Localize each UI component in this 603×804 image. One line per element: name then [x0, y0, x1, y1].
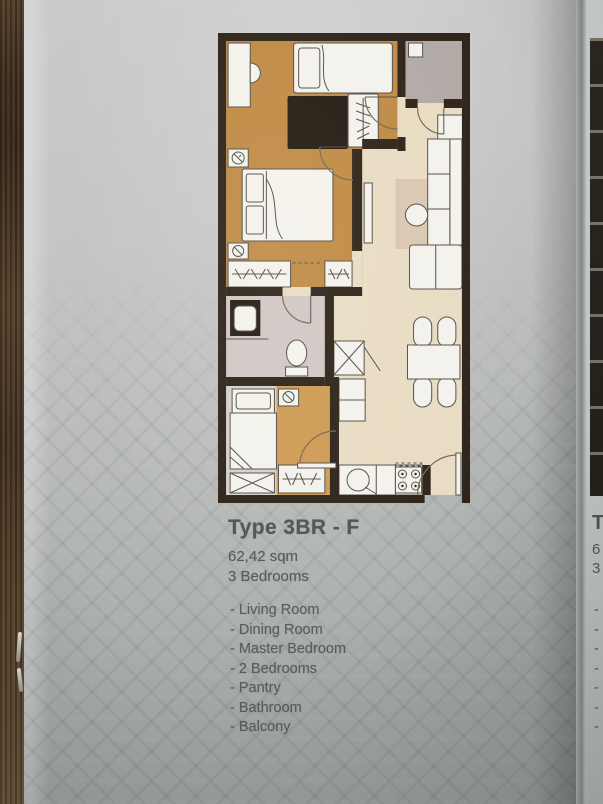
coffee-table: [405, 204, 427, 226]
fan-symbol-1: [228, 149, 248, 167]
plan-bedrooms: 3 Bedrooms: [228, 567, 360, 586]
balcony-unit: [409, 43, 423, 57]
master-wardrobe-right: [325, 261, 352, 287]
brochure-photo: Type 3BR - F 62,42 sqm 3 Bedrooms - Livi…: [0, 0, 603, 804]
plan-caption: Type 3BR - F 62,42 sqm 3 Bedrooms: [228, 516, 360, 586]
feature-item: - Pantry: [230, 679, 346, 699]
fan-symbol-3: [278, 389, 298, 406]
bedroom2-wardrobe-dark: [288, 96, 348, 149]
adjacent-floorplan-edge: [590, 38, 603, 496]
toilet-symbol: [286, 340, 308, 376]
fan-symbol-2: [228, 243, 248, 259]
feature-item: - Living Room: [230, 601, 346, 621]
adjacent-area-fragment: 6: [592, 541, 603, 559]
adjacent-title-fragment: T: [592, 512, 603, 534]
feature-item: - Bathroom: [230, 699, 346, 719]
plan-title: Type 3BR - F: [228, 516, 360, 540]
plan-area: 62,42 sqm: [228, 547, 360, 566]
feature-list: - Living Room - Dining Room - Master Bed…: [230, 601, 346, 738]
feature-item: - 2 Bedrooms: [230, 660, 346, 680]
hall-passage: [352, 251, 362, 289]
dining-table: [408, 345, 460, 379]
floorplan: [218, 33, 470, 503]
bedroom2-bed: [294, 43, 393, 93]
page-gap-shadow: [576, 0, 586, 804]
bedroom3-bed: [230, 389, 276, 469]
shaft-x-box: [230, 473, 274, 493]
master-wardrobe-left: [228, 261, 290, 287]
feature-item: - Master Bedroom: [230, 640, 346, 660]
adjacent-bedrooms-fragment: 3: [592, 560, 603, 578]
tv-console: [364, 183, 372, 243]
floorplan-svg: [218, 33, 470, 503]
master-bed: [242, 169, 333, 241]
feature-item: - Balcony: [230, 718, 346, 738]
adjacent-list-fragment: - - - - - - -: [594, 601, 603, 741]
bedroom3-wardrobe: [278, 465, 324, 493]
bathroom-sink: [230, 300, 260, 336]
feature-item: - Dining Room: [230, 621, 346, 641]
